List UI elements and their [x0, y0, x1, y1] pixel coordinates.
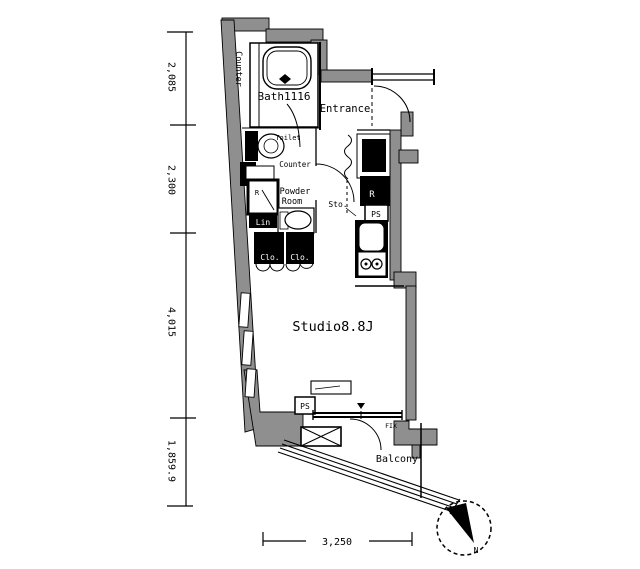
compass	[437, 501, 491, 555]
floor-plan-drawing: 2,085 2,300 4,015 1,859.9 3,250	[0, 0, 640, 569]
powder-label-2: Room	[282, 197, 302, 207]
storage-label: Sto.	[328, 200, 347, 209]
dim-left-3: 4,015	[166, 307, 177, 337]
bath-label: Bath1116	[258, 90, 311, 103]
closet	[254, 232, 314, 271]
counter-small-label: Counter	[279, 160, 311, 169]
fix-label: FIX	[385, 422, 397, 430]
linen-label: Lin	[256, 218, 271, 227]
powder-door-swing	[316, 164, 354, 202]
dimension-labels: 2,085 2,300 4,015 1,859.9 3,250	[166, 62, 353, 548]
hanger-arc-4	[300, 264, 313, 268]
wall-right-lower	[406, 286, 416, 420]
burner-right-dot	[376, 263, 379, 266]
balcony-door-swing	[350, 419, 381, 450]
window-1	[239, 293, 250, 328]
drain-triangle	[357, 403, 365, 409]
storage-accordion-door	[345, 135, 352, 179]
wash-basin	[285, 211, 311, 229]
powder-label-1: Powder	[280, 187, 311, 197]
ps-studio-label: PS	[300, 402, 310, 411]
dim-left-2: 2,300	[166, 165, 177, 195]
compass-needle	[446, 503, 474, 543]
wall-entrance-top	[321, 70, 372, 82]
counter-wall-label: Counter	[233, 51, 243, 87]
window-2	[242, 331, 253, 366]
burner-left-dot	[365, 263, 368, 266]
dim-left-4: 1,859.9	[166, 440, 177, 482]
closet-left-label: Clo.	[260, 253, 279, 262]
refrigerator-label: R	[369, 190, 375, 200]
wall-balcony-corner	[394, 421, 437, 445]
kitchen-sink	[359, 223, 384, 251]
ps-kitchen-label: PS	[371, 210, 381, 219]
studio-room	[239, 286, 404, 420]
refrigerator-space	[360, 176, 390, 206]
hanger-arc-3	[286, 264, 300, 271]
toilet-label: Toilet	[275, 134, 300, 142]
hanger-arc-2	[270, 264, 284, 271]
wall-entrance-right	[401, 112, 413, 136]
closet-right-label: Clo.	[290, 253, 309, 262]
hanger-arc-1	[256, 264, 270, 271]
kitchen-column	[345, 130, 391, 278]
compass-north-label: N	[474, 546, 479, 555]
entrance-label: Entrance	[320, 103, 371, 115]
wall-right-stub	[399, 150, 418, 163]
floor-plan-page: 2,085 2,300 4,015 1,859.9 3,250	[0, 0, 640, 569]
balcony-railing-hatch	[278, 440, 460, 514]
studio-label: Studio8.8J	[292, 319, 373, 335]
balcony-label: Balcony	[376, 454, 418, 465]
window-3	[245, 369, 256, 398]
washer-space	[362, 139, 386, 172]
studio-shelf	[311, 381, 351, 394]
toilet-tank	[245, 131, 258, 161]
dim-bottom: 3,250	[322, 537, 352, 548]
dim-left-1: 2,085	[166, 62, 177, 92]
